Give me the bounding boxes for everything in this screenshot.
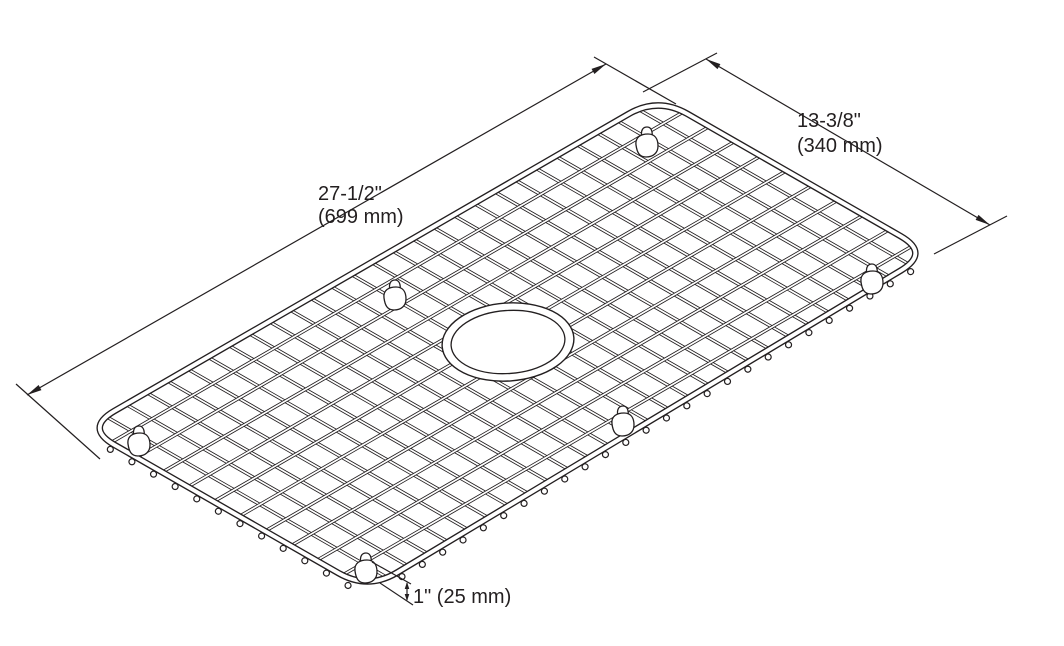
dimension-labels: 27-1/2" (699 mm) 13-3/8" (340 mm) 1" (25… — [318, 110, 883, 608]
extension-line — [934, 216, 1007, 254]
arrowhead — [592, 64, 606, 74]
width-dimension-mm-label: (340 mm) — [797, 135, 883, 157]
arrowhead — [976, 215, 990, 225]
height-dimension-label: 1" (25 mm) — [413, 586, 511, 608]
foot-bumper — [612, 413, 634, 436]
foot — [861, 264, 883, 294]
sink-grid-dimension-diagram: 27-1/2" (699 mm) 13-3/8" (340 mm) 1" (25… — [0, 0, 1064, 646]
length-dimension-inches-label: 27-1/2" — [318, 183, 382, 205]
width-dimension-inches-label: 13-3/8" — [797, 110, 861, 132]
arrowhead — [706, 59, 720, 69]
diagram-canvas: 27-1/2" (699 mm) 13-3/8" (340 mm) 1" (25… — [0, 0, 1064, 646]
foot-bumper — [636, 134, 658, 157]
wire-end-bump — [345, 582, 351, 588]
extension-line — [16, 384, 100, 459]
extension-line — [643, 53, 717, 92]
foot-bumper — [861, 271, 883, 294]
arrowhead — [27, 385, 41, 395]
length-dimension-mm-label: (699 mm) — [318, 206, 404, 228]
foot-bumper — [128, 433, 150, 456]
wire-end-bump — [908, 269, 914, 275]
foot-bumper — [384, 287, 406, 310]
